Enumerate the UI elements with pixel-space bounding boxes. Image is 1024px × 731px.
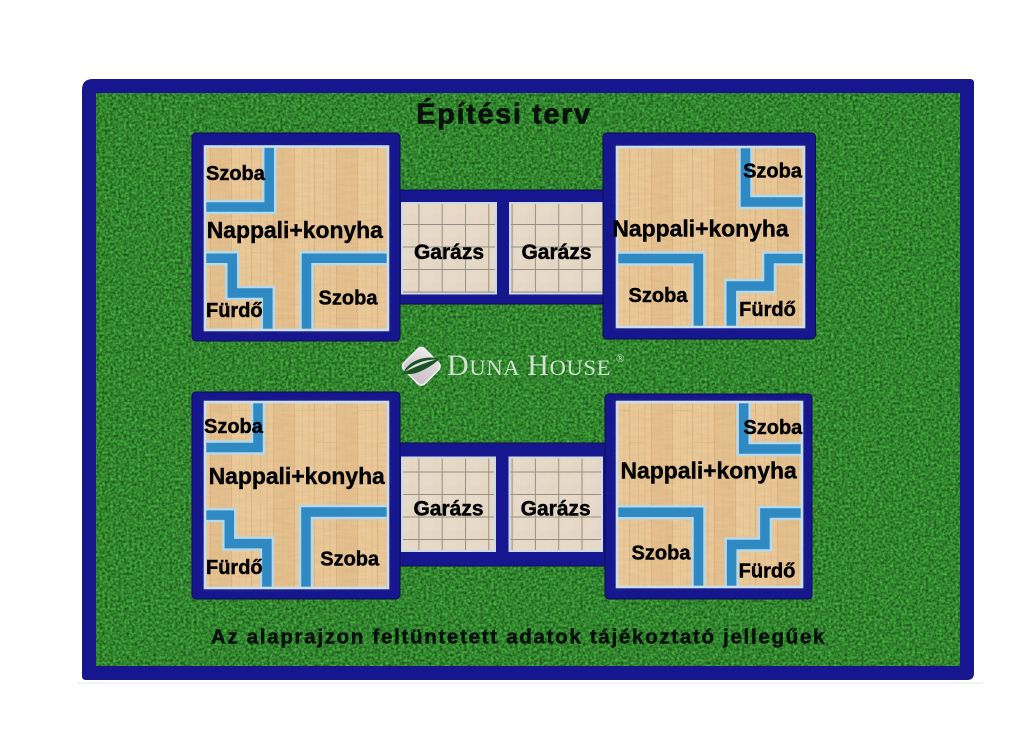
svg-text:Szoba: Szoba xyxy=(206,163,266,185)
svg-text:Garázs: Garázs xyxy=(413,498,483,521)
svg-text:Szoba: Szoba xyxy=(319,288,379,310)
svg-text:Garázs: Garázs xyxy=(521,241,591,264)
svg-text:Fürdő: Fürdő xyxy=(739,299,796,321)
svg-text:Szoba: Szoba xyxy=(632,543,692,565)
svg-text:Az alaprajzon feltüntetett ada: Az alaprajzon feltüntetett adatok tájéko… xyxy=(211,626,826,649)
svg-text:Szoba: Szoba xyxy=(743,161,803,183)
svg-text:Szoba: Szoba xyxy=(204,416,264,438)
svg-text:Fürdő: Fürdő xyxy=(739,561,796,583)
svg-text:Nappali+konyha: Nappali+konyha xyxy=(621,457,797,483)
svg-text:Nappali+konyha: Nappali+konyha xyxy=(207,217,383,243)
svg-text:Fürdő: Fürdő xyxy=(206,300,263,322)
svg-text:Garázs: Garázs xyxy=(414,241,484,264)
svg-text:Szoba: Szoba xyxy=(743,417,803,439)
svg-text:Szoba: Szoba xyxy=(320,549,380,571)
svg-text:Nappali+konyha: Nappali+konyha xyxy=(612,215,788,241)
svg-text:Nappali+konyha: Nappali+konyha xyxy=(209,463,385,489)
svg-text:Építési terv: Építési terv xyxy=(416,97,592,131)
svg-text:Szoba: Szoba xyxy=(629,285,689,307)
svg-text:Garázs: Garázs xyxy=(521,498,591,521)
svg-text:Fürdő: Fürdő xyxy=(206,557,263,579)
